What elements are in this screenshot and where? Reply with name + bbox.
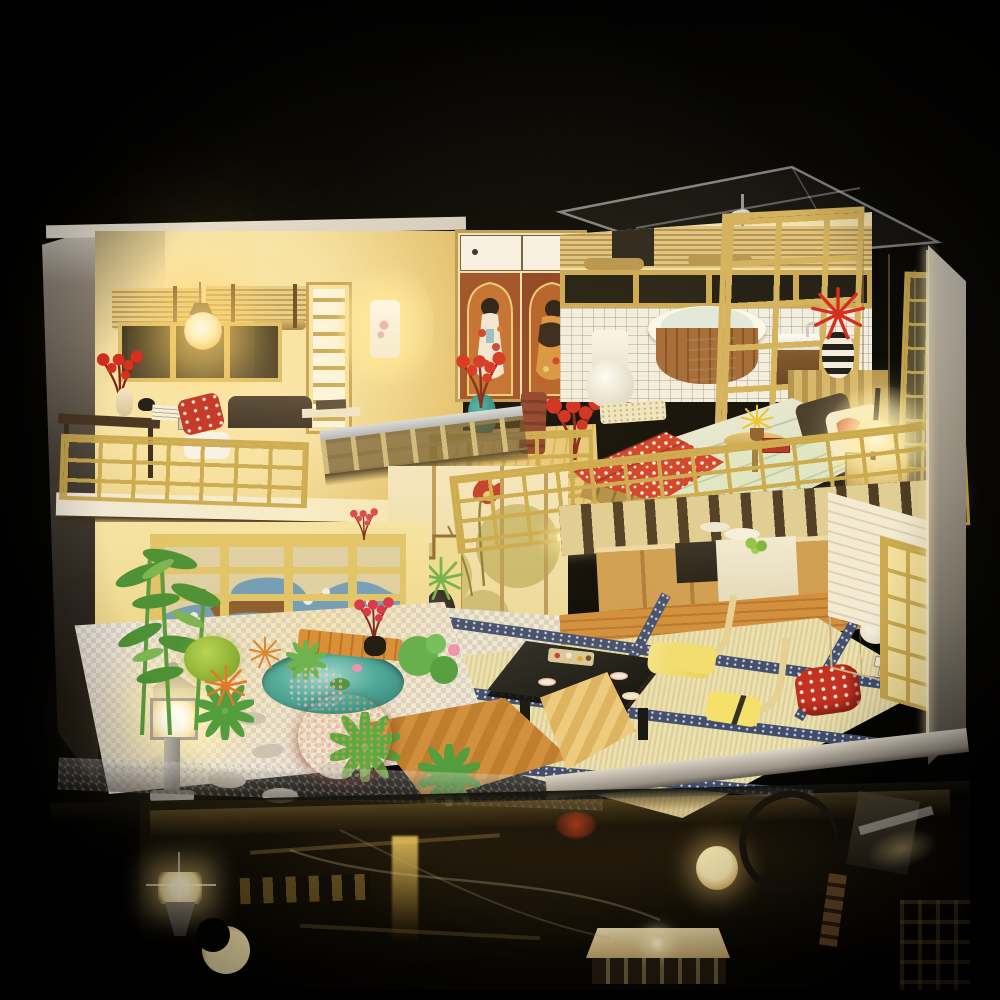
magazine — [316, 399, 346, 410]
orange-grass — [244, 636, 286, 670]
reflected-wires — [280, 810, 760, 950]
pink-bush — [288, 666, 346, 710]
food-plate — [622, 692, 640, 700]
reflected-bulb-bite — [196, 918, 230, 952]
garden-flower-pot — [364, 636, 386, 656]
reflected-lattice-right — [900, 900, 970, 990]
reflected-lightbox-slats — [592, 958, 726, 984]
bath-blind-roll — [584, 258, 644, 270]
transom-pane — [565, 275, 633, 303]
food-plate — [538, 678, 556, 686]
window-pane — [230, 326, 278, 378]
orange-grass — [198, 664, 254, 708]
desk-vase — [116, 388, 133, 416]
pendant-cord — [199, 282, 201, 306]
small-red-flower — [346, 506, 382, 540]
right-outer-wall — [928, 245, 966, 765]
lotus-leaves — [392, 630, 466, 694]
teal-vase-flowers — [444, 348, 518, 408]
lotus-blossom — [352, 664, 362, 672]
blind-tie-3 — [293, 284, 297, 328]
reflected-lantern-ray — [146, 884, 216, 886]
wardrobe-top-panel-left — [460, 235, 522, 271]
reflected-lantern-glow — [158, 872, 202, 904]
dollhouse-night-photo: Two-story Japanese-style DIY miniature d… — [0, 0, 1000, 1000]
table-leg — [638, 708, 648, 740]
wardrobe-knob — [472, 249, 478, 255]
right-wall-rimlight — [926, 250, 929, 750]
red-lily — [806, 286, 870, 342]
food-plate — [610, 672, 628, 680]
green-apples — [742, 536, 772, 554]
sconce-motif — [376, 318, 392, 342]
sofa-dark — [228, 396, 312, 428]
loft-railing-left — [59, 434, 309, 509]
counter-plate-2 — [700, 522, 730, 532]
transom-pane — [639, 275, 707, 303]
pendant-bulb — [184, 312, 222, 350]
